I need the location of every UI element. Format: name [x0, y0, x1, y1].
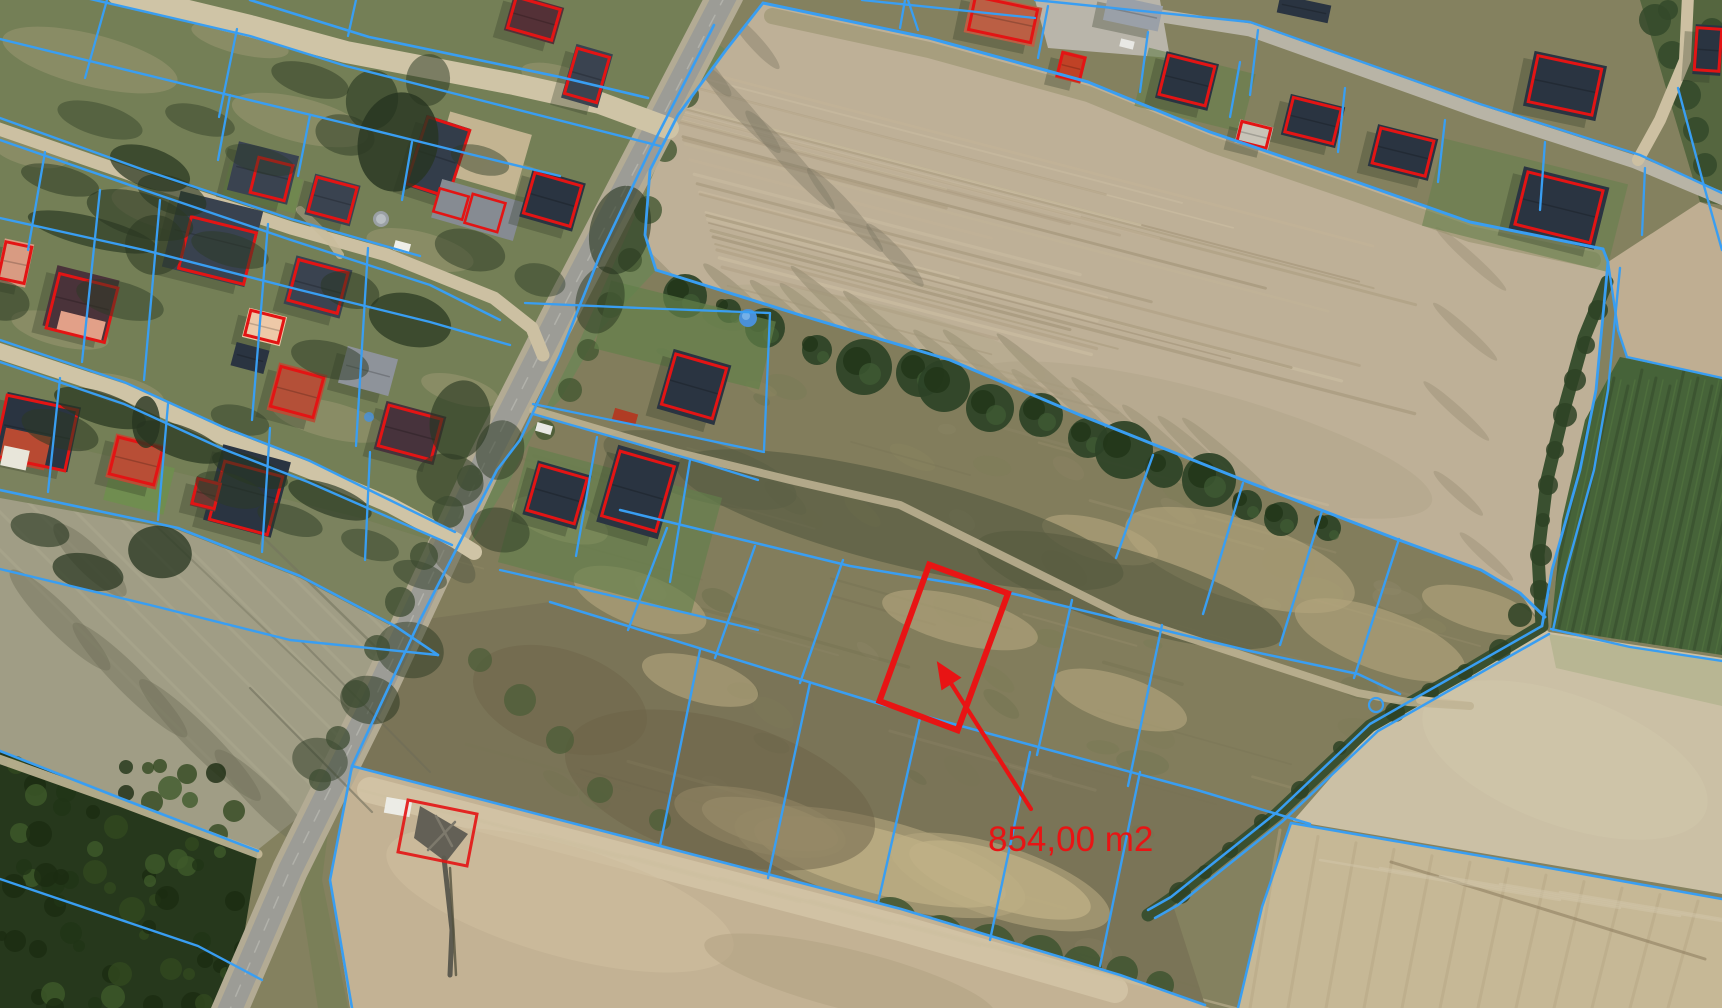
- svg-text:854,00 m2: 854,00 m2: [988, 820, 1153, 859]
